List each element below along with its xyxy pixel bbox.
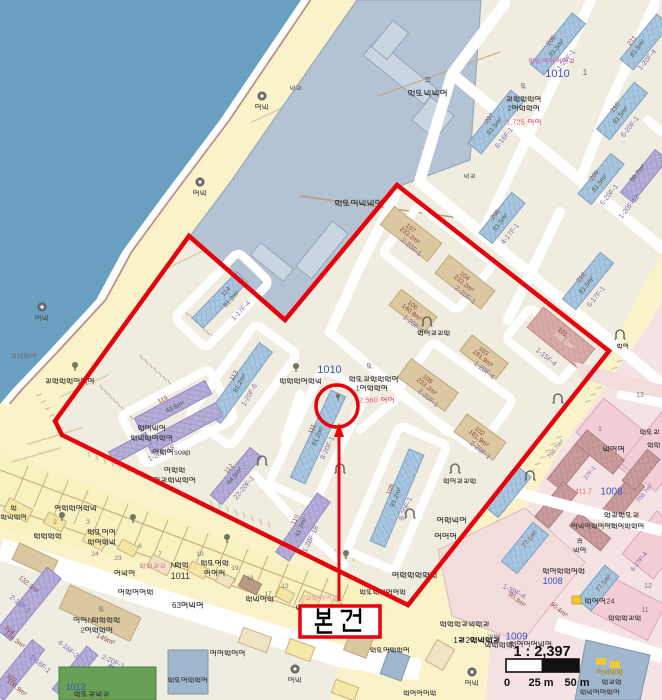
svg-text:13: 13 bbox=[636, 392, 644, 399]
svg-text:23: 23 bbox=[114, 555, 122, 562]
svg-text:1,725: 1,725 bbox=[506, 118, 525, 127]
svg-text:1: 1 bbox=[598, 426, 602, 433]
svg-text:2: 2 bbox=[508, 104, 512, 113]
svg-text:10: 10 bbox=[196, 551, 204, 558]
svg-text:2: 2 bbox=[81, 626, 85, 635]
svg-text:1008: 1008 bbox=[600, 487, 623, 498]
svg-text:63: 63 bbox=[172, 601, 181, 610]
svg-text:1: 1 bbox=[583, 68, 588, 77]
svg-text:19: 19 bbox=[231, 565, 239, 572]
svg-text:2: 2 bbox=[53, 519, 57, 526]
svg-text:13: 13 bbox=[281, 583, 289, 590]
svg-text:6: 6 bbox=[138, 543, 142, 550]
svg-text:1: 1 bbox=[356, 384, 360, 393]
svg-text:2: 2 bbox=[301, 596, 305, 603]
svg-text:1 : 2,397: 1 : 2,397 bbox=[513, 644, 570, 660]
svg-text:1009: 1009 bbox=[505, 632, 528, 643]
svg-text:2: 2 bbox=[466, 636, 471, 645]
svg-text:1010: 1010 bbox=[545, 68, 569, 80]
svg-text:1010: 1010 bbox=[317, 364, 341, 376]
svg-text:1011: 1011 bbox=[171, 571, 190, 581]
svg-text:7: 7 bbox=[158, 551, 162, 558]
svg-text:11: 11 bbox=[641, 607, 648, 614]
svg-text:18: 18 bbox=[246, 575, 254, 582]
svg-text:0: 0 bbox=[504, 677, 510, 689]
svg-text:2,560: 2,560 bbox=[359, 396, 378, 405]
svg-text:3: 3 bbox=[86, 519, 90, 526]
svg-text:24: 24 bbox=[91, 551, 99, 558]
svg-text:soap: soap bbox=[174, 448, 190, 457]
svg-text:50 m: 50 m bbox=[564, 677, 589, 689]
svg-text:24: 24 bbox=[606, 597, 614, 606]
svg-text:1012: 1012 bbox=[66, 682, 86, 692]
svg-text:25 m: 25 m bbox=[528, 677, 553, 689]
svg-text:1008: 1008 bbox=[543, 576, 563, 586]
svg-text:17: 17 bbox=[264, 591, 272, 598]
svg-text:1: 1 bbox=[453, 636, 458, 645]
svg-text:12: 12 bbox=[644, 583, 652, 590]
svg-text:411.7: 411.7 bbox=[575, 489, 592, 496]
